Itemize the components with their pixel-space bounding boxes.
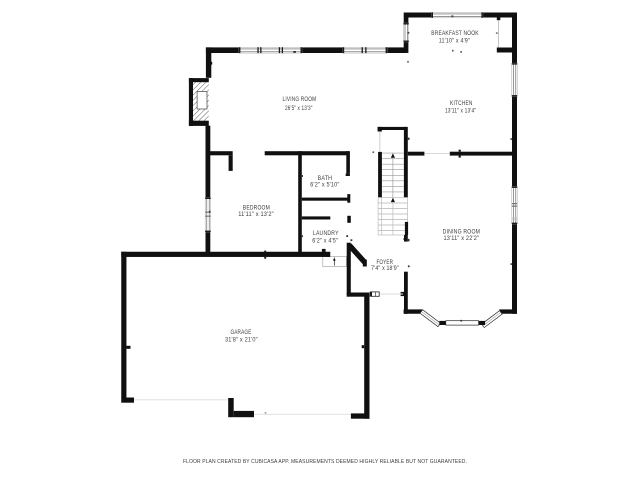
svg-text:KITCHEN: KITCHEN xyxy=(450,100,473,107)
svg-text:31'8" x 21'0": 31'8" x 21'0" xyxy=(225,337,258,344)
svg-text:13'11" x 13'4": 13'11" x 13'4" xyxy=(445,107,476,114)
svg-text:LIVING ROOM: LIVING ROOM xyxy=(283,96,317,103)
svg-text:26'5" x 13'3": 26'5" x 13'3" xyxy=(285,105,313,112)
svg-text:11'10" x 4'9": 11'10" x 4'9" xyxy=(439,37,470,44)
svg-text:13'11" x 22'2": 13'11" x 22'2" xyxy=(443,235,479,242)
svg-text:LAUNDRY: LAUNDRY xyxy=(313,230,339,237)
svg-text:7'4" x 18'9": 7'4" x 18'9" xyxy=(371,265,399,272)
svg-text:GARAGE: GARAGE xyxy=(230,329,251,336)
svg-text:BREAKFAST NOOK: BREAKFAST NOOK xyxy=(431,30,479,37)
svg-text:6'2" x 4'5": 6'2" x 4'5" xyxy=(312,238,338,245)
svg-text:6'2" x 5'10": 6'2" x 5'10" xyxy=(310,181,339,188)
svg-text:FLOOR PLAN CREATED BY CUBICASA: FLOOR PLAN CREATED BY CUBICASA APP. MEAS… xyxy=(183,459,467,465)
svg-text:11'11" x 13'2": 11'11" x 13'2" xyxy=(238,211,274,218)
